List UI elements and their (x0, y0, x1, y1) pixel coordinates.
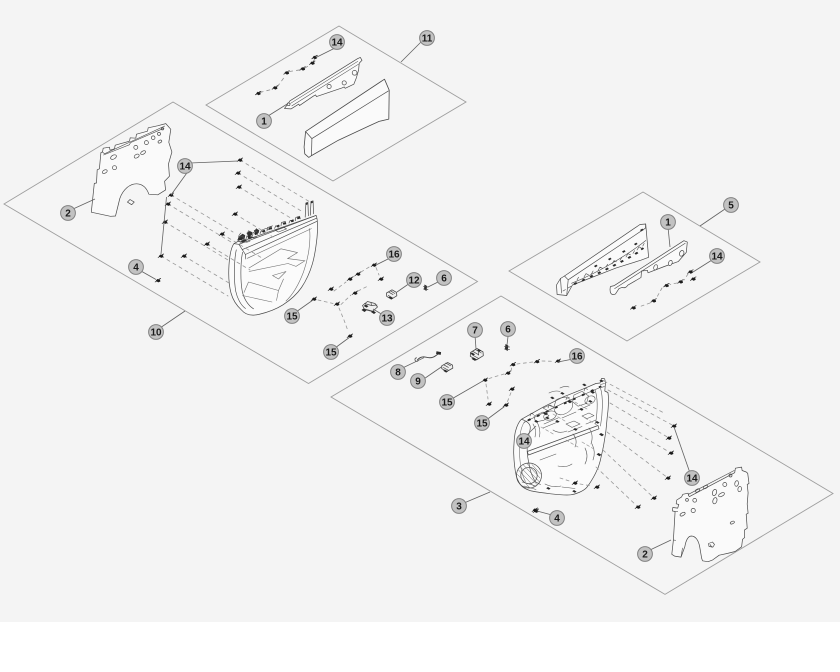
svg-text:9: 9 (415, 377, 421, 388)
svg-text:16: 16 (571, 352, 583, 363)
svg-text:15: 15 (441, 398, 453, 409)
svg-text:5: 5 (728, 201, 734, 212)
svg-text:1: 1 (261, 117, 267, 128)
svg-text:7: 7 (472, 326, 478, 337)
svg-text:3: 3 (456, 502, 462, 513)
svg-text:14: 14 (711, 252, 723, 263)
svg-text:15: 15 (325, 348, 337, 359)
svg-text:6: 6 (505, 325, 511, 336)
svg-text:4: 4 (554, 514, 560, 525)
svg-text:2: 2 (65, 209, 71, 220)
svg-text:4: 4 (133, 263, 139, 274)
svg-text:1: 1 (665, 218, 671, 229)
svg-text:15: 15 (476, 419, 488, 430)
svg-text:12: 12 (408, 276, 420, 287)
svg-text:14: 14 (331, 38, 343, 49)
svg-text:13: 13 (381, 314, 393, 325)
svg-text:11: 11 (422, 34, 433, 45)
svg-text:10: 10 (150, 328, 162, 339)
svg-text:6: 6 (441, 274, 447, 285)
svg-text:14: 14 (179, 162, 191, 173)
svg-text:16: 16 (388, 250, 400, 261)
svg-text:14: 14 (518, 437, 530, 448)
svg-text:14: 14 (686, 474, 698, 485)
svg-text:2: 2 (642, 550, 648, 561)
svg-text:8: 8 (395, 368, 401, 379)
svg-text:15: 15 (286, 312, 298, 323)
